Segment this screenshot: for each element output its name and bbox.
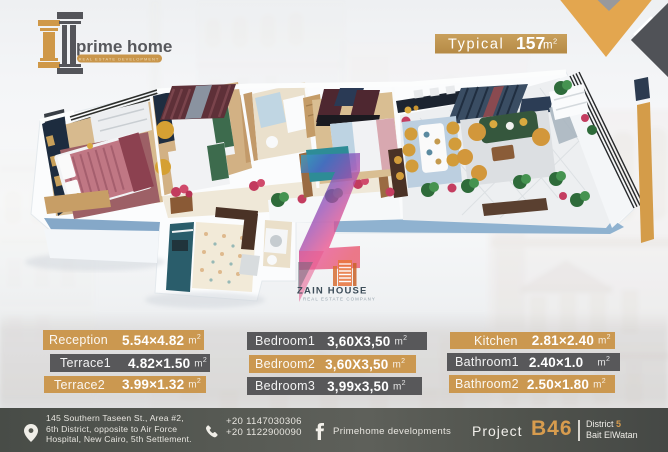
svg-text:2: 2: [553, 37, 557, 46]
svg-text:prime home: prime home: [76, 37, 172, 56]
svg-text:REAL ESTATE COMPANY: REAL ESTATE COMPANY: [303, 297, 376, 302]
svg-text:ZAIN HOUSE: ZAIN HOUSE: [297, 286, 368, 297]
svg-text:m: m: [543, 40, 553, 52]
svg-text:REAL ESTATE DEVELOPMENT: REAL ESTATE DEVELOPMENT: [79, 56, 160, 61]
svg-text:Typical: Typical: [448, 37, 504, 53]
svg-text:157: 157: [516, 33, 545, 53]
